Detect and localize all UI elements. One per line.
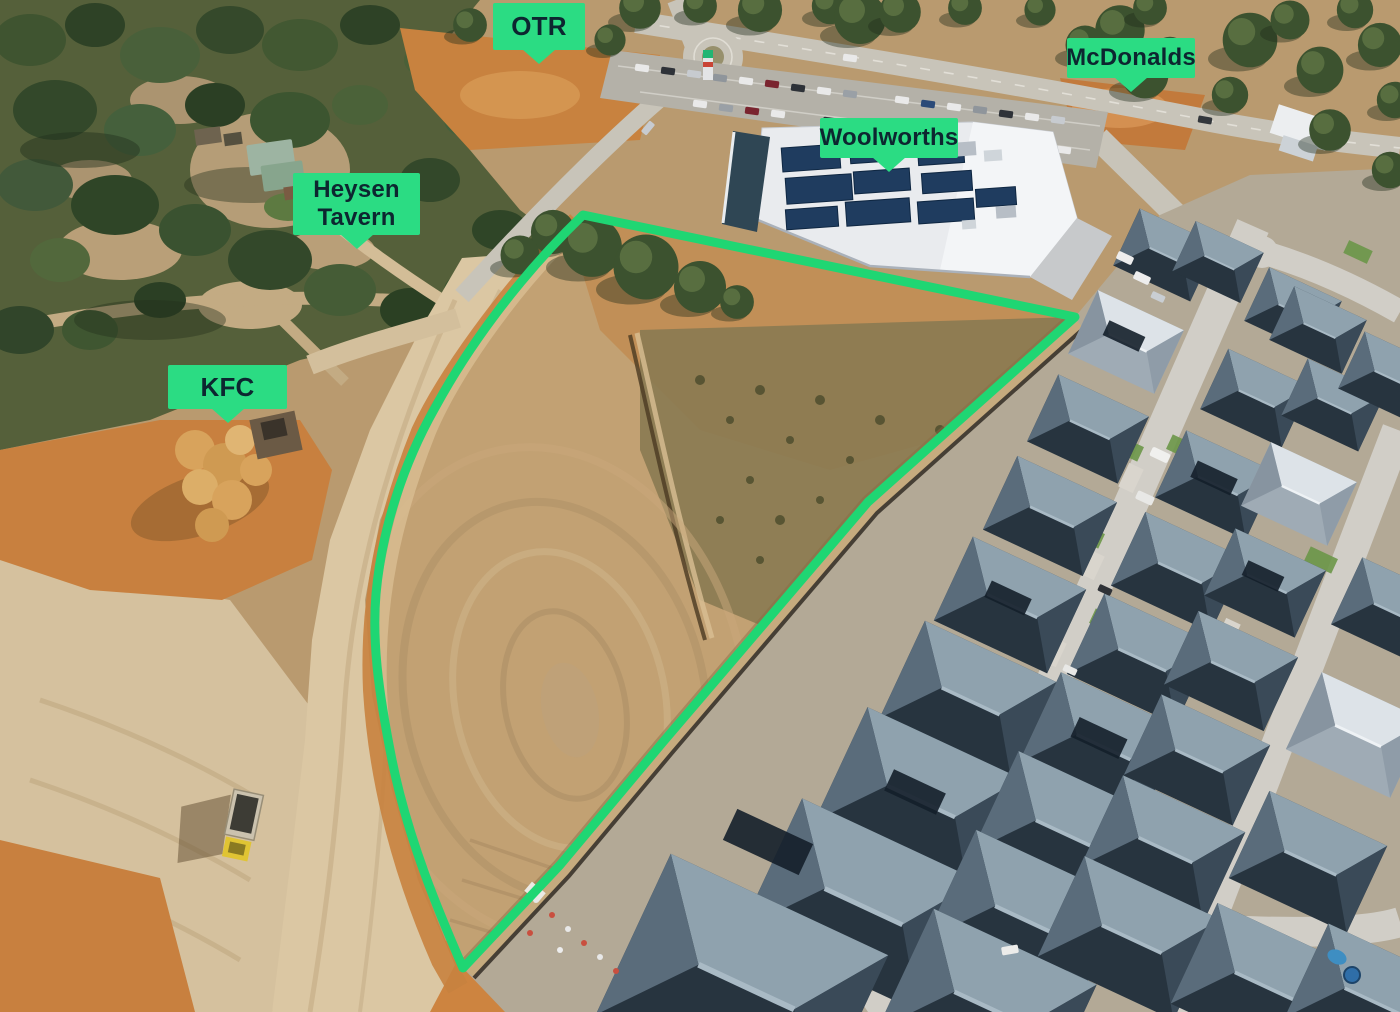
label-text: KFC bbox=[200, 372, 254, 403]
label-otr: OTR bbox=[493, 3, 585, 50]
aerial-scene bbox=[0, 0, 1400, 1012]
aerial-photo: OTR McDonalds Woolworths Heysen Tavern K… bbox=[0, 0, 1400, 1012]
label-text: Woolworths bbox=[820, 124, 959, 152]
callout-pointer bbox=[1114, 77, 1148, 92]
label-text: OTR bbox=[511, 11, 566, 42]
label-heysen-tavern: Heysen Tavern bbox=[293, 173, 420, 235]
callout-pointer bbox=[872, 157, 906, 172]
label-text: Heysen Tavern bbox=[313, 176, 400, 233]
callout-pointer bbox=[211, 408, 245, 423]
callout-pointer bbox=[340, 234, 374, 249]
otr-price-sign bbox=[703, 50, 713, 80]
label-woolworths: Woolworths bbox=[820, 118, 958, 158]
label-mcdonalds: McDonalds bbox=[1067, 38, 1195, 78]
label-kfc: KFC bbox=[168, 365, 287, 409]
callout-pointer bbox=[522, 49, 556, 64]
label-text: McDonalds bbox=[1066, 44, 1196, 72]
